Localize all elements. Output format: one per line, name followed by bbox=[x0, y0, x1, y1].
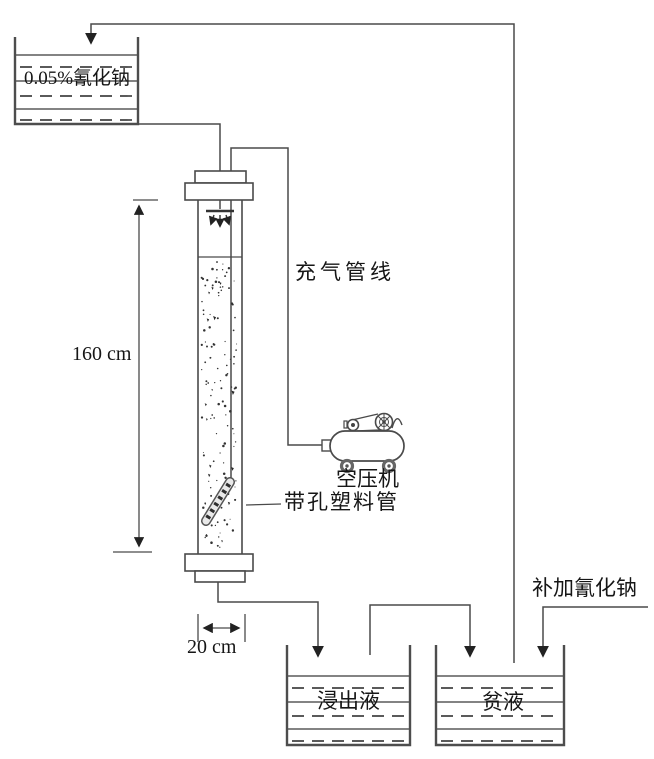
air-compressor bbox=[322, 414, 404, 472]
bottom-flange bbox=[185, 554, 253, 571]
makeup-nacn-label: 补加氰化钠 bbox=[532, 577, 637, 600]
column-height-label: 160 cm bbox=[72, 343, 131, 365]
top-flange-cap bbox=[195, 171, 246, 183]
perforated-pipe-label: 带孔塑料管 bbox=[284, 491, 399, 514]
spray-distributor bbox=[206, 211, 234, 226]
nacn-tank-label: 0.05%氰化钠 bbox=[16, 69, 138, 90]
perforated-pipe bbox=[206, 482, 281, 521]
diagram-linework bbox=[0, 0, 654, 759]
barren-tank-label: 贫液 bbox=[482, 691, 524, 714]
leaching-column-diagram: 0.05%氰化钠 充气管线 160 cm 空压机 带孔塑料管 补加氰化钠 20 … bbox=[0, 0, 654, 759]
return-pipe bbox=[91, 24, 514, 663]
top-flange bbox=[185, 183, 253, 200]
perforated-pipe-leader bbox=[246, 504, 281, 505]
leach-column bbox=[185, 171, 253, 582]
aeration-line-label: 充气管线 bbox=[295, 261, 395, 284]
height-dimension bbox=[113, 200, 158, 552]
transfer-pipe bbox=[370, 605, 470, 656]
makeup-pipe bbox=[543, 607, 648, 656]
compressor-label: 空压机 bbox=[336, 468, 399, 491]
compressor-tank bbox=[330, 431, 404, 461]
compressor-handle bbox=[392, 419, 402, 428]
bottom-flange-cap bbox=[195, 571, 245, 582]
leachate-tank-label: 浸出液 bbox=[317, 690, 380, 713]
column-width-label: 20 cm bbox=[187, 636, 236, 658]
